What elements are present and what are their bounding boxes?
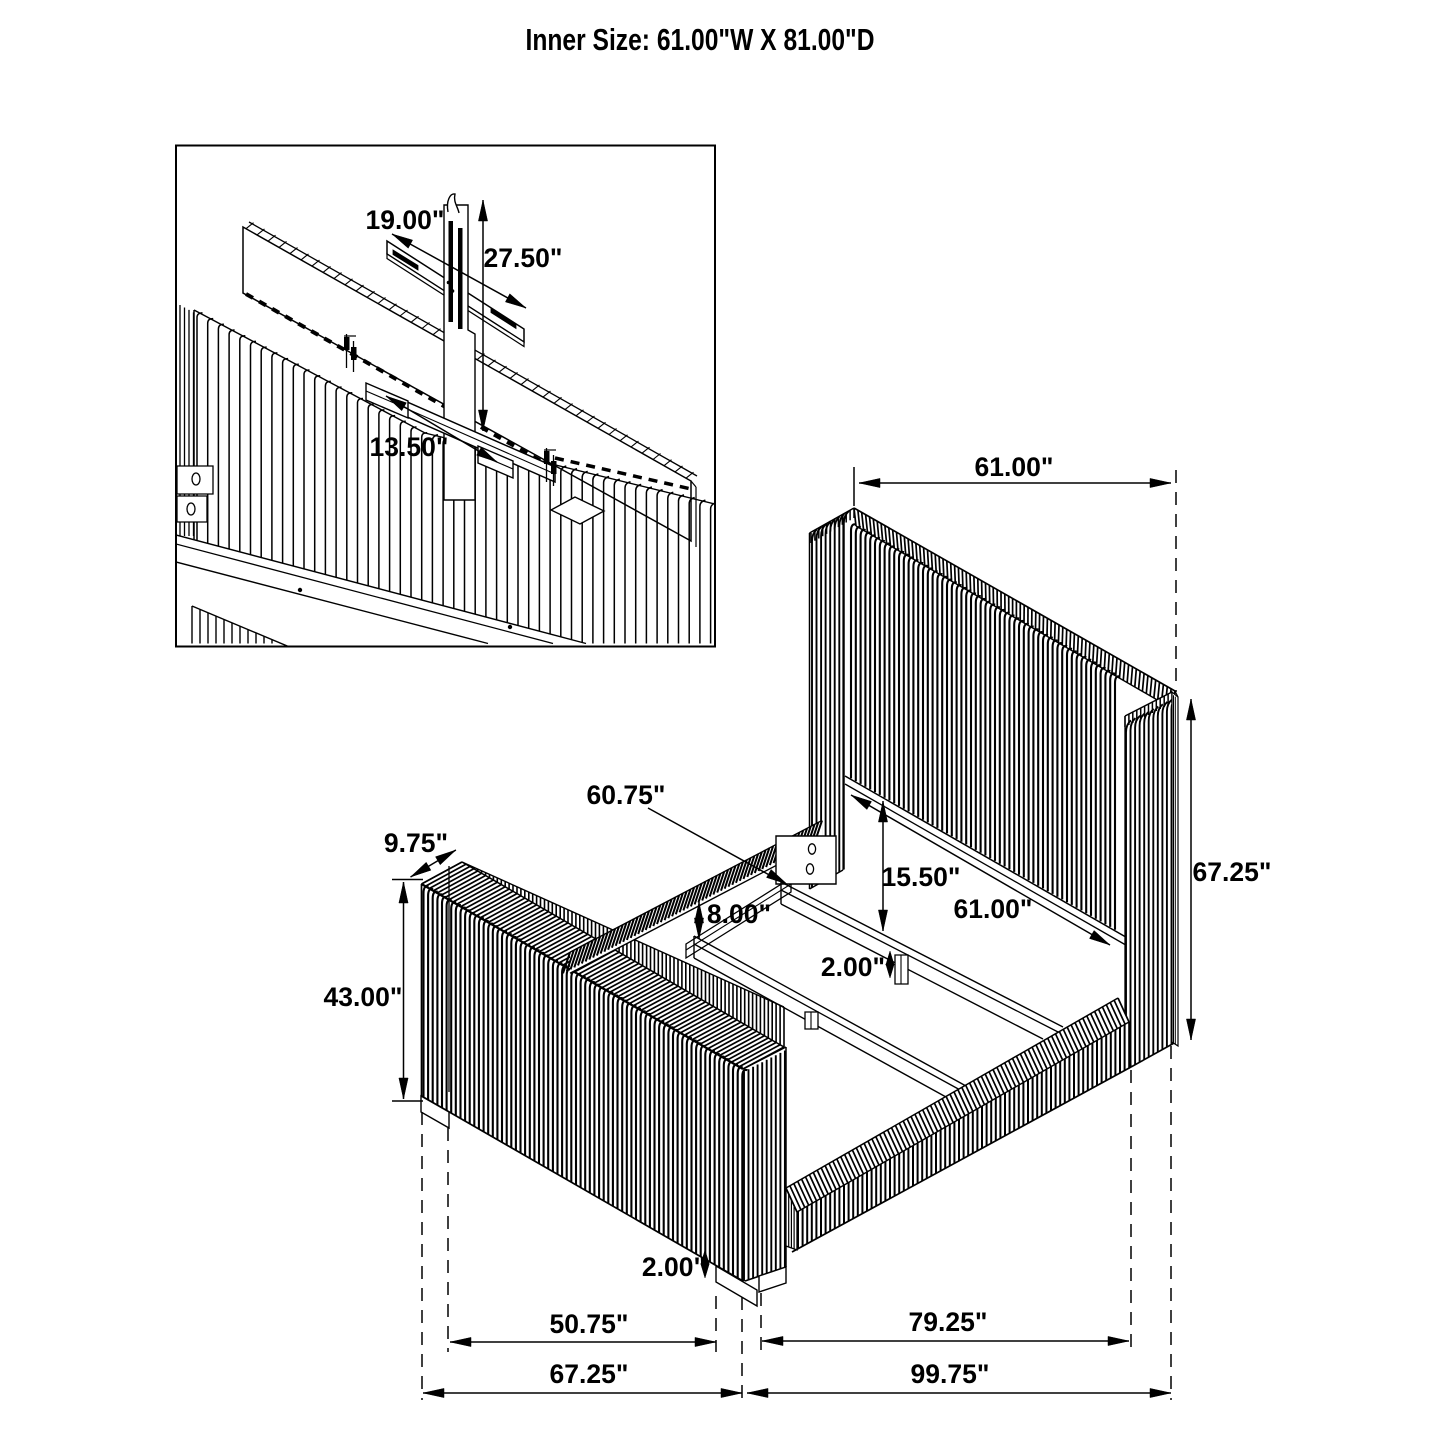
svg-text:50.75": 50.75" [550, 1309, 629, 1339]
svg-text:Inner Size: 61.00"W X 81.00"D: Inner Size: 61.00"W X 81.00"D [526, 22, 875, 57]
svg-text:61.00": 61.00" [954, 894, 1033, 924]
svg-text:60.75": 60.75" [587, 780, 666, 810]
svg-text:61.00": 61.00" [975, 452, 1054, 482]
svg-text:13.50": 13.50" [370, 432, 449, 462]
svg-text:15.50": 15.50" [882, 862, 961, 892]
svg-text:8.00": 8.00" [707, 899, 771, 929]
svg-text:99.75": 99.75" [911, 1359, 990, 1389]
svg-text:19.00": 19.00" [366, 205, 445, 235]
svg-text:27.50": 27.50" [484, 243, 563, 273]
svg-text:67.25": 67.25" [550, 1359, 629, 1389]
svg-text:79.25": 79.25" [909, 1307, 988, 1337]
svg-text:2.00": 2.00" [821, 952, 885, 982]
svg-text:67.25": 67.25" [1193, 857, 1272, 887]
svg-text:2.00": 2.00" [642, 1252, 706, 1282]
svg-text:43.00": 43.00" [324, 982, 403, 1012]
svg-text:9.75": 9.75" [384, 828, 448, 858]
